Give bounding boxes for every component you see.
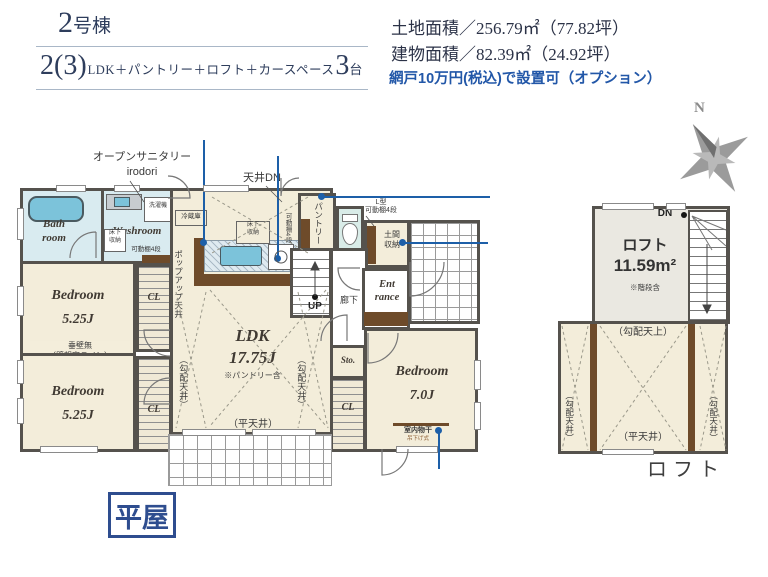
callout-dot-pantry <box>318 193 325 200</box>
callout-line-doma <box>402 242 488 244</box>
option-note-text: 網戸10万円(税込)で設置可（オプション） <box>389 67 661 88</box>
window <box>40 446 98 453</box>
dn-dot <box>681 212 687 218</box>
window <box>56 185 86 192</box>
window <box>474 360 481 390</box>
land-area-text: 土地面積／256.79㎡（77.82坪） <box>391 14 629 39</box>
ldk-note: ※パントリー含 <box>205 371 300 381</box>
window <box>17 208 24 240</box>
window <box>114 185 140 192</box>
window <box>396 446 438 453</box>
single-story-tag: 平屋 <box>108 492 176 538</box>
hallway-label: 廊下 <box>334 295 364 306</box>
l-shelf-callout: L型 可動棚4段 <box>350 199 412 216</box>
loft-sloped-top-label: （勾配天上） <box>610 327 676 340</box>
building-suffix: 号棟 <box>73 16 111 37</box>
storage-label: Sto. <box>333 355 363 366</box>
loft-name: ロフト <box>600 237 690 256</box>
window <box>17 286 24 316</box>
laundry-label: 室内物干 <box>396 427 440 436</box>
loft-wall-left <box>590 324 597 451</box>
entrance-porch <box>408 220 480 324</box>
bedroom1-label: Bedroom 5.25J <box>28 284 128 332</box>
callout-dot-laundry <box>435 427 442 434</box>
closet1-label: CL <box>140 292 168 305</box>
plan-count: 3 <box>335 50 349 82</box>
plan-prefix: 2(3) <box>40 50 87 82</box>
sliding-door <box>252 429 316 436</box>
up-dot <box>312 294 318 300</box>
vanity-sink <box>114 197 130 207</box>
washer-label: 洗濯機 <box>144 197 172 222</box>
loft-sloped-right-label: （勾配天井） <box>708 382 719 450</box>
building-title: 2号棟 <box>58 6 111 40</box>
shelf4-label: 可動棚4段 <box>124 246 168 254</box>
header-rule-top <box>36 46 368 47</box>
window <box>17 360 24 384</box>
closet-3 <box>330 377 366 452</box>
callout-dot-popup <box>200 239 207 246</box>
closet3-label: CL <box>334 402 362 415</box>
window <box>602 203 654 210</box>
loft-wall-right <box>688 324 695 451</box>
building-area-text: 建物面積／82.39㎡（24.92坪） <box>391 40 621 65</box>
closet-1 <box>136 264 172 352</box>
floorplan-page: 2号棟 2(3) LDK＋パントリー＋ロフト＋カースペース 3 台 土地面積／2… <box>0 0 768 577</box>
sloped-ceiling-left-label: （勾配天井） <box>177 336 188 428</box>
callout-line-sink <box>277 156 279 259</box>
window <box>474 402 481 430</box>
wood-deck <box>168 434 332 486</box>
laundry-sub-label: 吊下げ式 <box>400 436 436 443</box>
compass-north-label: N <box>694 100 705 117</box>
underfloor-storage-label: 床下 収納 <box>104 229 126 252</box>
window <box>17 398 24 424</box>
ldk-label: LDK 17.75J <box>205 325 300 369</box>
up-label: UP <box>301 301 329 314</box>
loft-tag: ロフト <box>636 458 736 483</box>
loft-stairs <box>688 210 728 322</box>
bedroom2-label: Bedroom 5.25J <box>28 380 128 428</box>
callout-dot-sink <box>274 255 281 262</box>
callout-line-pantry <box>322 196 490 198</box>
pantry-shelf-label: 可動棚4段 <box>283 204 291 252</box>
ceiling-dn-callout: 天井DN <box>234 172 290 186</box>
sloped-ceiling-right-label: （勾配天井） <box>295 336 306 428</box>
loft-area: 11.59m² <box>596 255 694 276</box>
doma-shelf <box>367 226 376 264</box>
sliding-door <box>182 429 246 436</box>
loft-flat-ceiling-label: （平天井） <box>612 432 674 445</box>
building-number: 2 <box>58 6 73 39</box>
plan-unit: 台 <box>349 59 362 78</box>
callout-line-laundry <box>438 430 440 469</box>
plan-type-line: 2(3) LDK＋パントリー＋ロフト＋カースペース 3 台 <box>40 50 362 82</box>
entrance-label: Ent rance <box>366 278 408 304</box>
entrance-step <box>364 312 408 326</box>
bathroom-label: Bath room <box>24 218 84 246</box>
window <box>203 185 249 192</box>
loft-sloped-left-label: （勾配天井） <box>564 382 575 450</box>
header-rule-bottom <box>36 89 368 90</box>
compass-rose <box>659 103 768 213</box>
loft-note: ※階段含 <box>600 283 690 292</box>
kitchen-sink <box>220 246 262 266</box>
window <box>602 449 654 455</box>
underfloor-storage2-label: 床下 収納 <box>236 221 270 244</box>
bedroom3-label: Bedroom 7.0J <box>374 360 470 408</box>
laundry-bar <box>393 423 449 426</box>
pantry-label: パントリー <box>313 199 324 247</box>
plan-middle: LDK＋パントリー＋ロフト＋カースペース <box>88 59 335 78</box>
closet2-label: CL <box>140 404 168 417</box>
callout-dot-doma <box>399 239 406 246</box>
popup-ceiling-label: ポップアップ天井 <box>173 228 184 340</box>
window <box>666 203 686 210</box>
washroom-shelf <box>142 255 170 263</box>
open-sanitary-callout: オープンサニタリー irodori <box>86 150 198 180</box>
pantry-shelf <box>301 219 310 248</box>
